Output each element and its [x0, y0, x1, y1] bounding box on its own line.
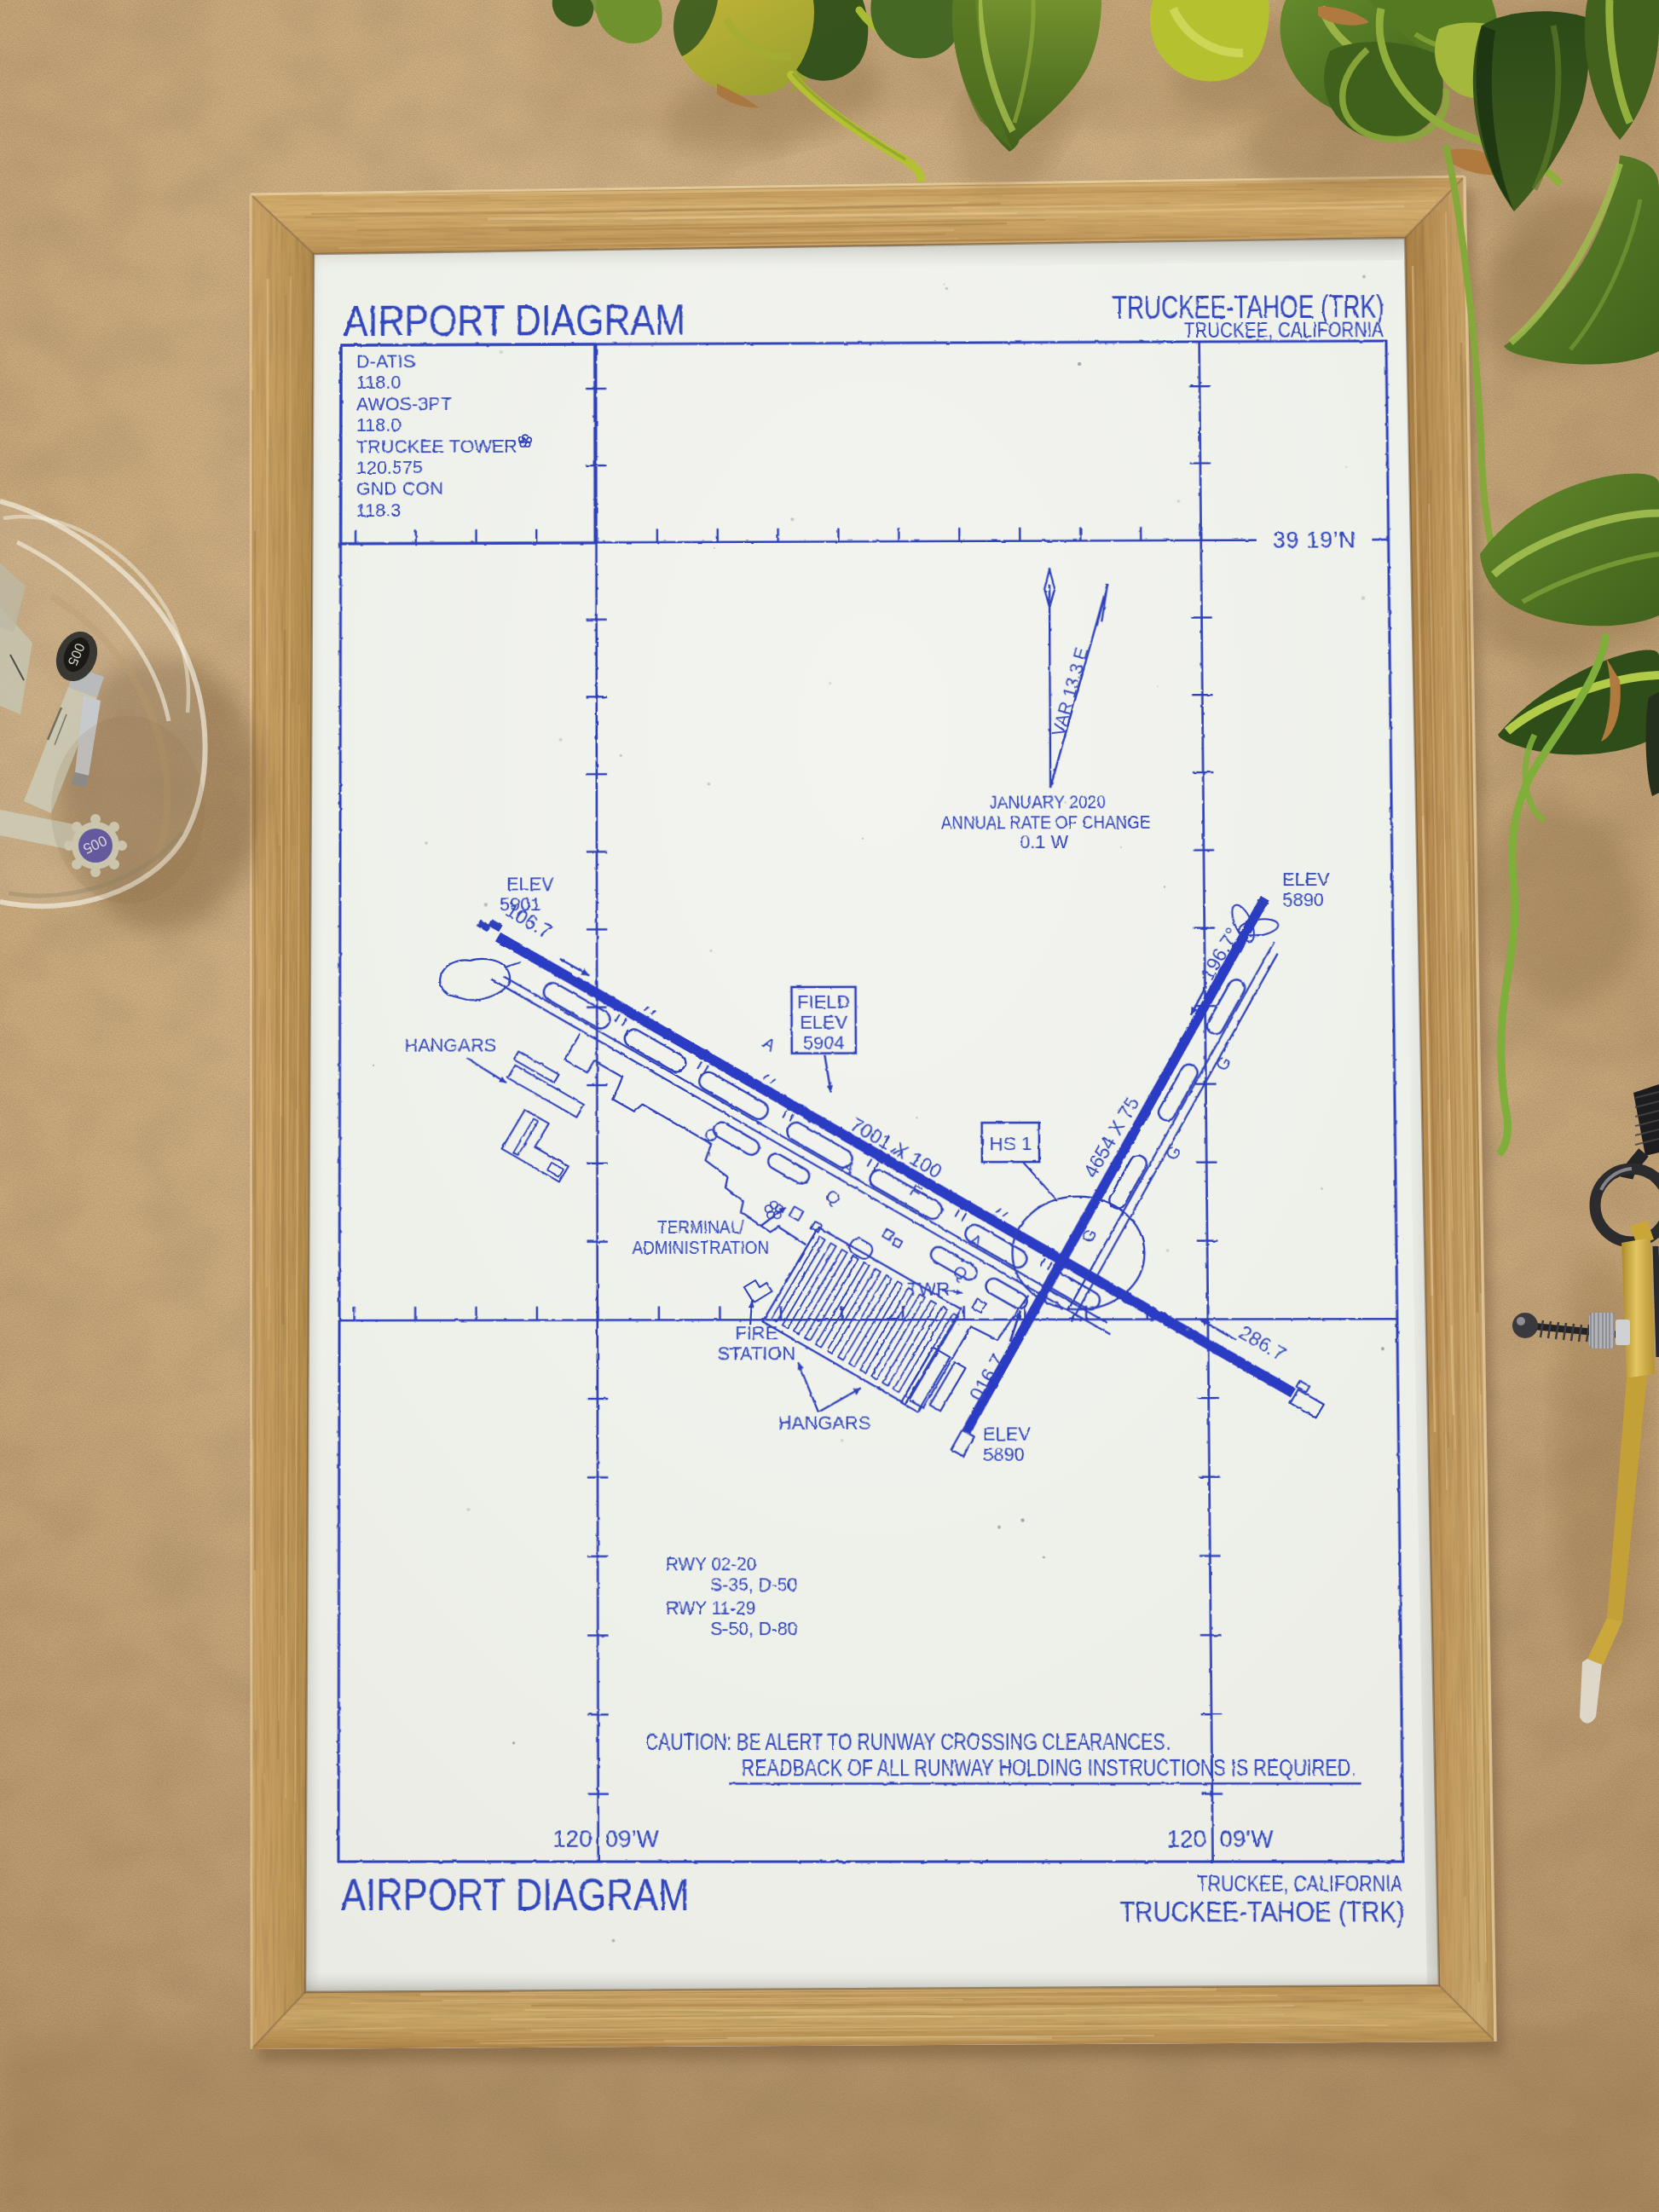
svg-text:FIRE: FIRE: [735, 1323, 777, 1343]
svg-text:Q: Q: [950, 1262, 971, 1285]
svg-text:120: 120: [552, 1826, 592, 1852]
svg-text:JANUARY 2020: JANUARY 2020: [989, 792, 1106, 812]
svg-text:GND CON: GND CON: [356, 479, 443, 500]
svg-text:016.7: 016.7: [964, 1350, 1009, 1404]
svg-text:118.3: 118.3: [356, 500, 402, 521]
svg-text:G: G: [1161, 1142, 1185, 1164]
svg-text:AIRPORT DIAGRAM: AIRPORT DIAGRAM: [341, 1869, 690, 1920]
svg-text:TWR: TWR: [907, 1279, 950, 1299]
svg-text:ELEV: ELEV: [506, 874, 554, 894]
svg-text:HS 1: HS 1: [989, 1133, 1032, 1154]
svg-text:G: G: [1211, 1053, 1235, 1074]
svg-text:TRUCKEE, CALIFORNIA: TRUCKEE, CALIFORNIA: [1197, 1871, 1403, 1896]
svg-text:HANGARS: HANGARS: [778, 1412, 870, 1434]
svg-text:STATION: STATION: [718, 1343, 796, 1365]
svg-text:READBACK OF ALL RUNWAY HOLDING: READBACK OF ALL RUNWAY HOLDING INSTRUCTI…: [742, 1753, 1356, 1781]
svg-text:ADMINISTRATION: ADMINISTRATION: [633, 1238, 770, 1259]
svg-text:TERMINAL/: TERMINAL/: [657, 1217, 744, 1239]
svg-text:AWOS-3PT: AWOS-3PT: [356, 394, 452, 414]
svg-text:ELEV: ELEV: [800, 1012, 848, 1032]
svg-text:A: A: [839, 1156, 859, 1178]
svg-text:RWY 02-20: RWY 02-20: [666, 1553, 756, 1575]
svg-text:5901: 5901: [500, 894, 540, 915]
svg-text:S-50, D-80: S-50, D-80: [710, 1618, 797, 1640]
svg-text:5904: 5904: [803, 1032, 845, 1053]
svg-text:5890: 5890: [1282, 890, 1324, 910]
svg-text:118.0: 118.0: [356, 373, 401, 393]
svg-text:120: 120: [1167, 1826, 1207, 1852]
svg-text:F: F: [906, 1181, 925, 1202]
svg-text:0.1 W: 0.1 W: [1020, 832, 1068, 852]
svg-text:HANGARS: HANGARS: [405, 1035, 497, 1055]
svg-text:120.575: 120.575: [356, 458, 423, 478]
svg-text:TRUCKEE TOWER: TRUCKEE TOWER: [356, 436, 517, 457]
svg-text:FIELD: FIELD: [797, 992, 850, 1013]
svg-text:A: A: [760, 1033, 780, 1055]
svg-text:TRUCKEE, CALIFORNIA: TRUCKEE, CALIFORNIA: [1184, 317, 1384, 342]
svg-text:ELEV: ELEV: [983, 1424, 1032, 1445]
svg-text:VAR 13.3 E: VAR 13.3 E: [1048, 645, 1092, 738]
svg-text:Q: Q: [823, 1186, 844, 1209]
svg-text:09’W: 09’W: [605, 1826, 660, 1852]
svg-text:ELEV: ELEV: [1282, 869, 1331, 890]
svg-text:RWY 11-29: RWY 11-29: [666, 1597, 755, 1619]
svg-text:TRUCKEE-TAHOE (TRK): TRUCKEE-TAHOE (TRK): [1119, 1895, 1405, 1927]
svg-text:CAUTION: BE ALERT TO RUNWAY CR: CAUTION: BE ALERT TO RUNWAY CROSSING CLE…: [645, 1728, 1171, 1755]
svg-text:39 19’N: 39 19’N: [1273, 527, 1356, 552]
svg-text:118.0: 118.0: [356, 415, 401, 436]
svg-text:D-ATIS: D-ATIS: [356, 351, 415, 372]
svg-text:AIRPORT DIAGRAM: AIRPORT DIAGRAM: [344, 295, 685, 345]
svg-text:5890: 5890: [983, 1444, 1025, 1465]
svg-text:09’W: 09’W: [1219, 1826, 1274, 1852]
svg-text:S-35, D-50: S-35, D-50: [710, 1574, 797, 1596]
svg-text:ANNUAL RATE OF CHANGE: ANNUAL RATE OF CHANGE: [941, 812, 1150, 834]
